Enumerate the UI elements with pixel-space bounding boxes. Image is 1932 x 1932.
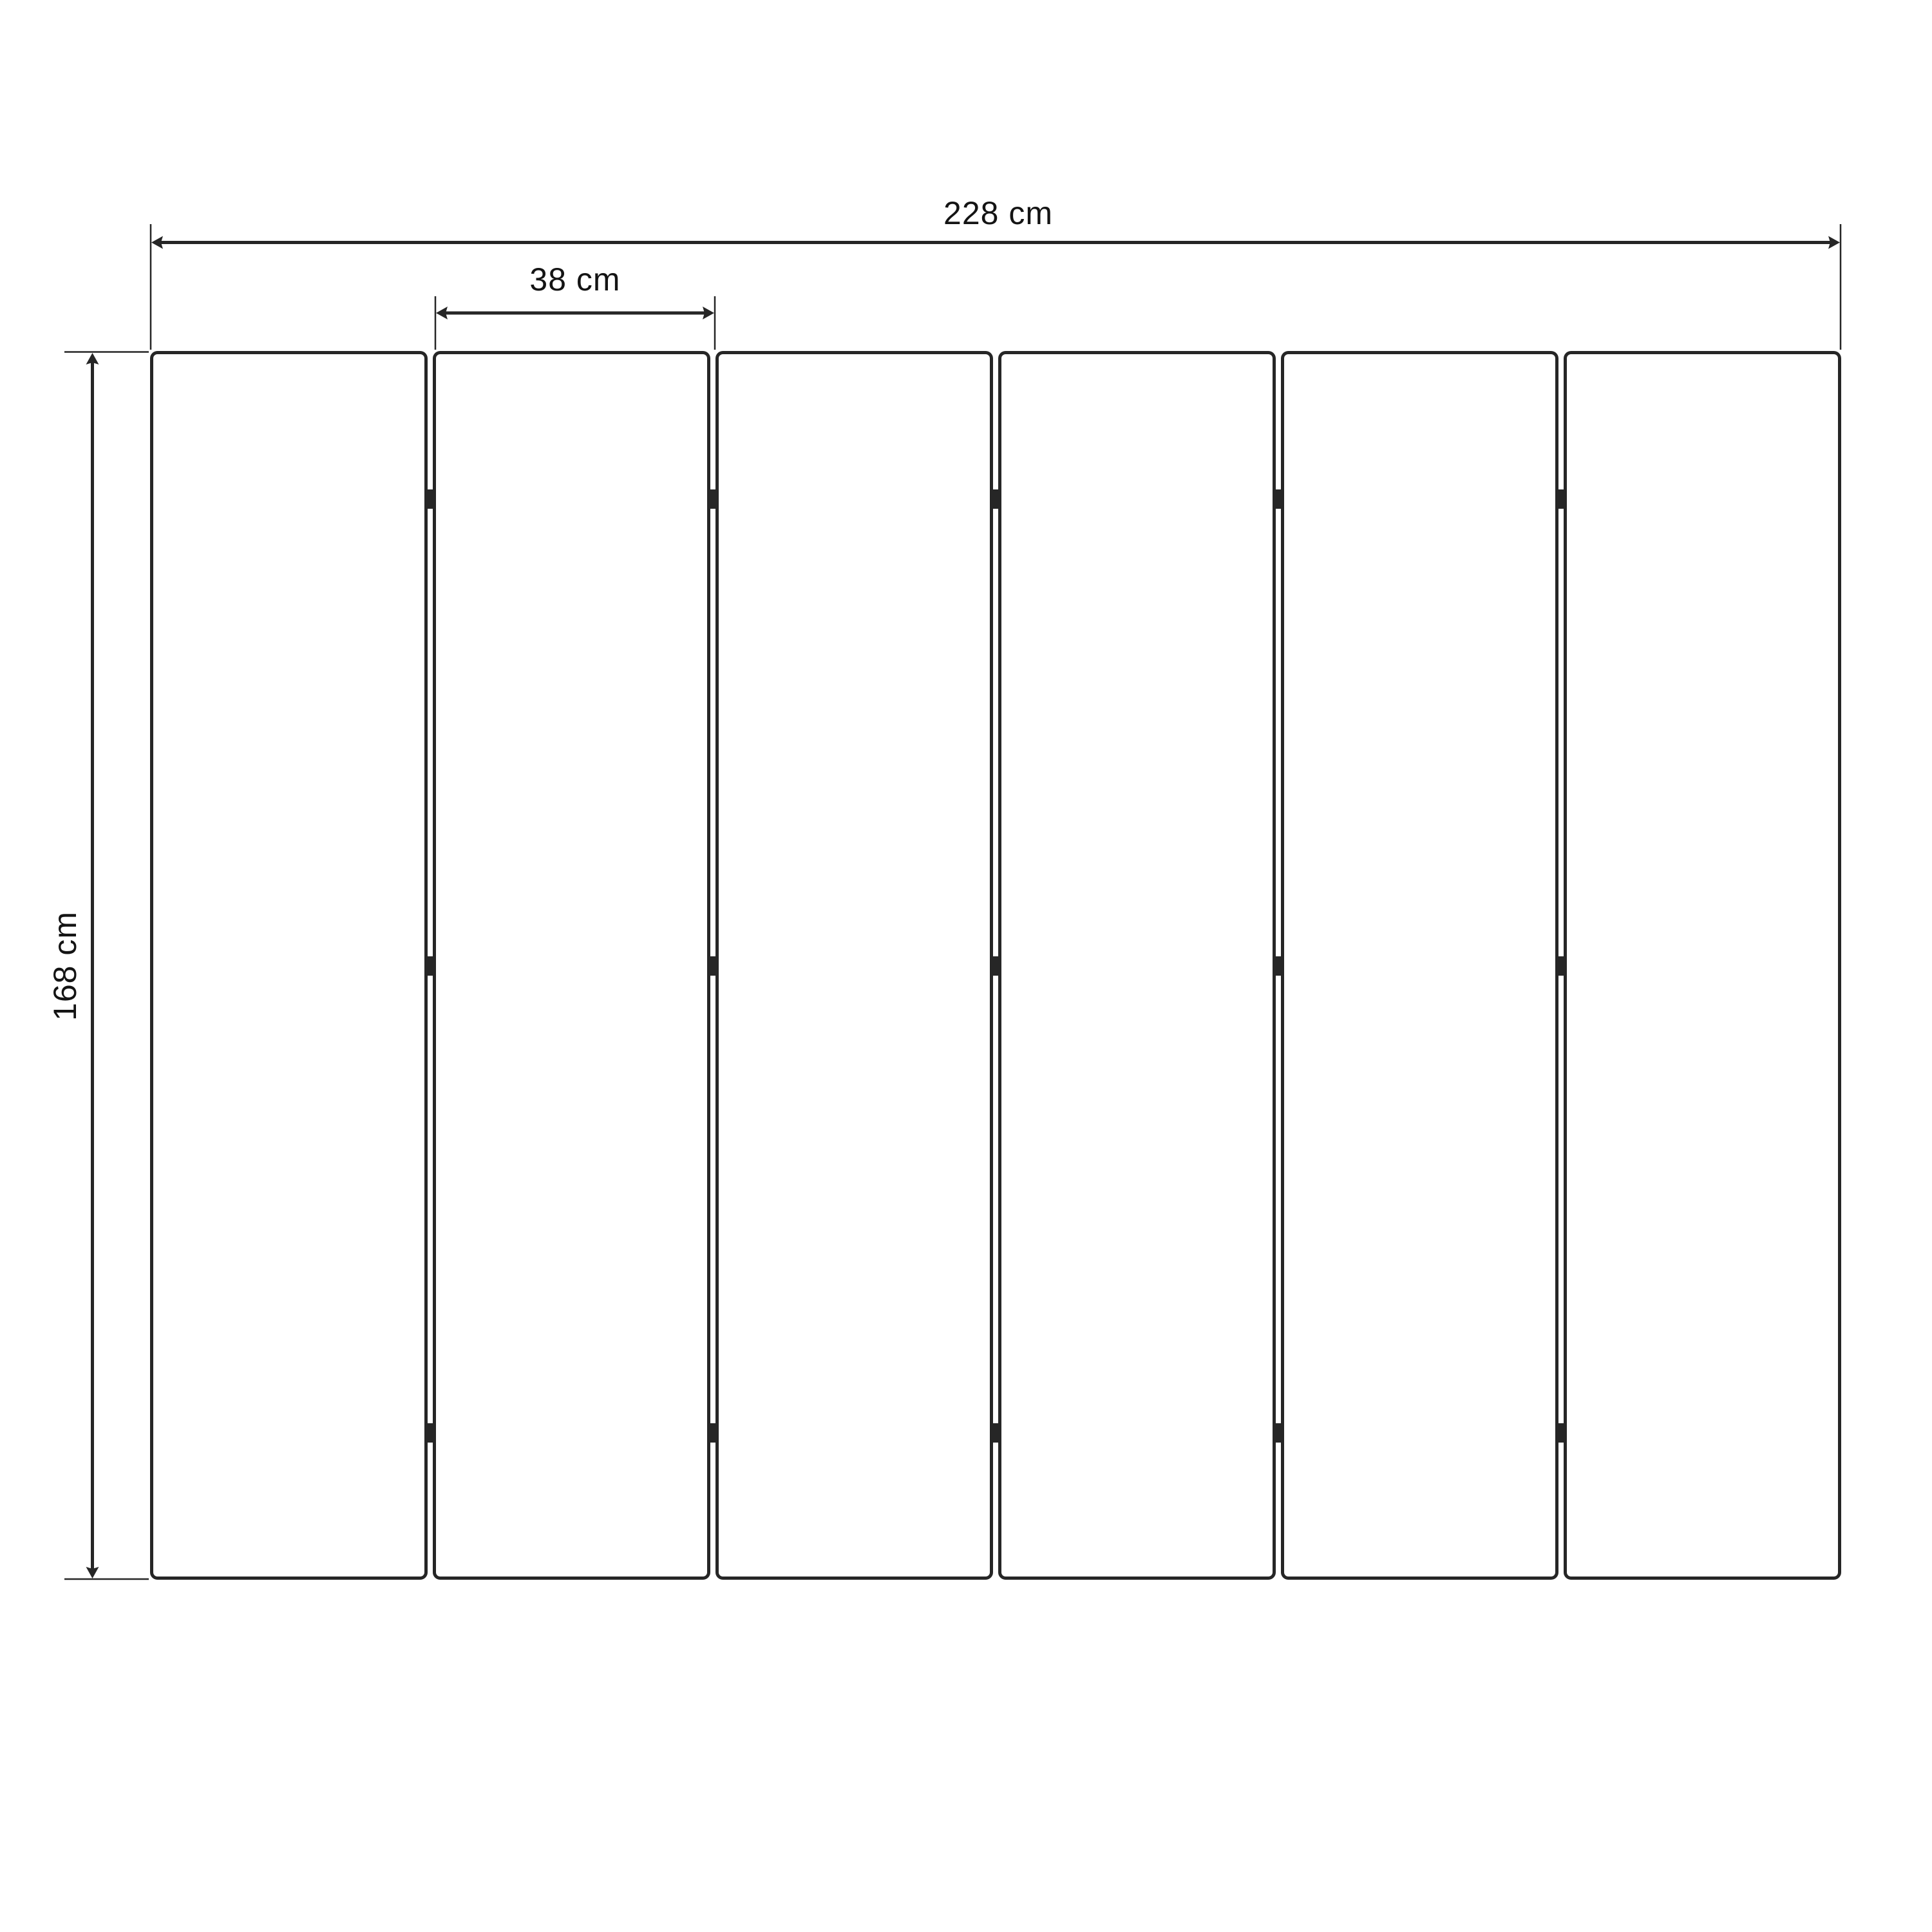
hinge-mark xyxy=(992,956,1000,976)
panel-outline-5 xyxy=(1283,353,1557,1578)
hinge-mark xyxy=(426,489,435,509)
total-width-label: 228 cm xyxy=(943,195,1053,231)
total-width-dimension: 228 cm xyxy=(151,195,1841,350)
hinge-mark xyxy=(1557,956,1566,976)
panel-outline-2 xyxy=(435,353,709,1578)
height-dimension: 168 cm xyxy=(47,352,149,1580)
hinge-mark xyxy=(1274,1423,1283,1443)
panel-outline-1 xyxy=(152,353,426,1578)
hinge-mark xyxy=(426,956,435,976)
hinge-mark xyxy=(992,489,1000,509)
hinge-mark xyxy=(1557,1423,1566,1443)
hinge-mark xyxy=(426,1423,435,1443)
panel-outline-3 xyxy=(717,353,992,1578)
panel-outline-4 xyxy=(1000,353,1274,1578)
panel-dimension-diagram: 228 cm 38 cm 168 cm xyxy=(0,0,1932,1932)
hinge-mark xyxy=(709,1423,717,1443)
panel-width-label: 38 cm xyxy=(529,261,620,298)
panel-outline-6 xyxy=(1566,353,1840,1578)
hinge-mark xyxy=(1557,489,1566,509)
panel-width-dimension: 38 cm xyxy=(435,261,715,350)
hinge-mark xyxy=(709,956,717,976)
height-label: 168 cm xyxy=(47,911,83,1021)
hinge-mark xyxy=(709,489,717,509)
hinge-mark xyxy=(1274,489,1283,509)
panel-drawing-canvas: 228 cm 38 cm 168 cm xyxy=(0,0,1932,1932)
hinge-mark xyxy=(992,1423,1000,1443)
hinge-mark xyxy=(1274,956,1283,976)
